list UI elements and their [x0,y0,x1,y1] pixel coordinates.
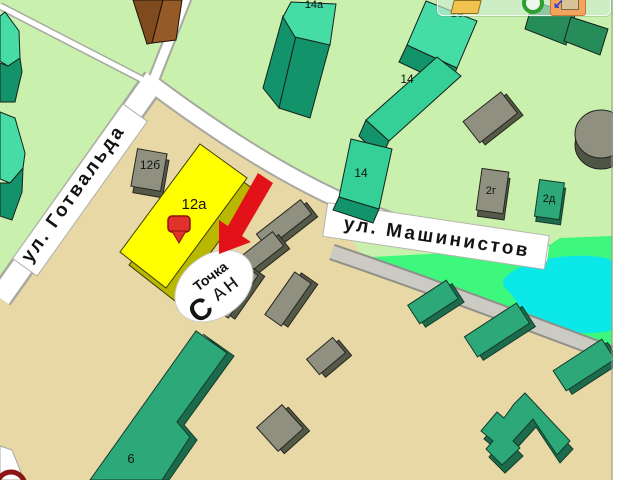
map-toolbar: ↙ [437,0,611,16]
label-6: 6 [127,451,134,466]
map-viewport-blank [613,0,640,480]
folder-icon[interactable] [450,0,481,14]
measure-arrow-icon: ↙ [553,0,564,10]
marker-pin-body [168,216,190,232]
label-12b: 12б [140,158,160,172]
label-12a: 12а [181,196,207,213]
measure-button[interactable]: ↙ [550,0,586,16]
map-screenshot: ул. Готвальда ул. Машинистов 14а 16 14 1… [0,0,640,480]
label-2d: 2д [543,193,556,205]
building-12b [130,149,170,198]
rotate-icon[interactable] [522,0,544,14]
map-canvas[interactable]: ул. Готвальда ул. Машинистов 14а 16 14 1… [0,0,640,480]
label-14-mid: 14 [354,166,368,180]
label-14-upper: 14 [400,72,414,86]
label-14a: 14а [305,0,324,11]
label-2g: 2г [486,185,496,197]
